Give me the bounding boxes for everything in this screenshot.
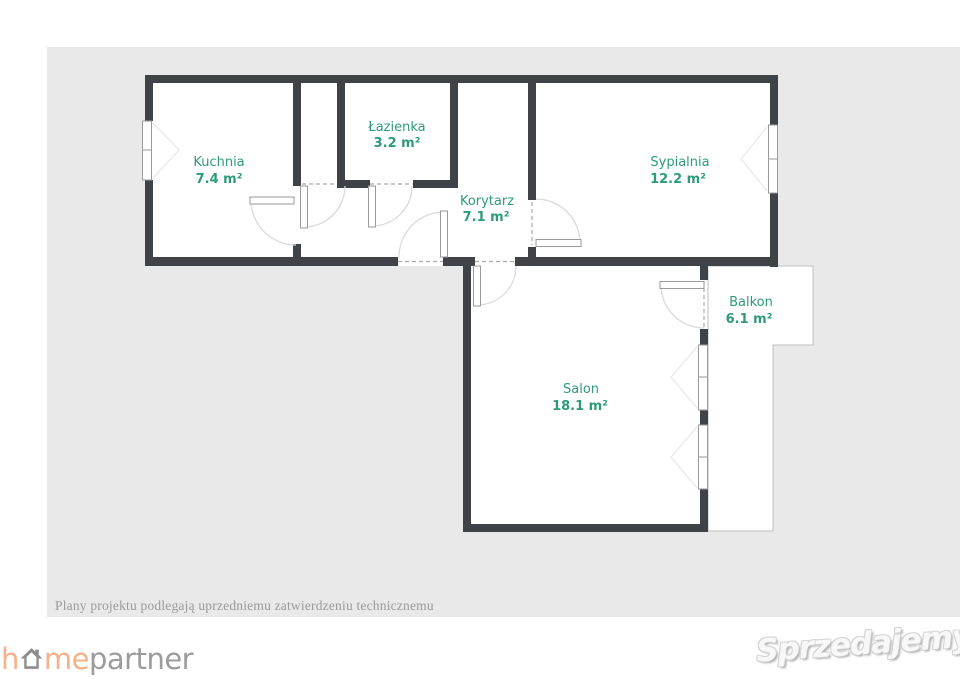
svg-text:Kuchnia: Kuchnia (193, 155, 244, 170)
disclaimer-text: Plany projektu podlegają uprzedniemu zat… (55, 598, 434, 614)
svg-text:3.2 m²: 3.2 m² (374, 136, 421, 151)
house-icon (18, 645, 45, 672)
svg-text:Balkon: Balkon (729, 295, 773, 310)
vestibule-door (301, 186, 308, 228)
svg-text:18.1 m²: 18.1 m² (552, 399, 608, 414)
balcony-door (660, 282, 704, 289)
entrance-door (441, 211, 448, 257)
bedroom-door (536, 240, 581, 247)
svg-text:Łazienka: Łazienka (367, 120, 425, 135)
svg-text:12.2 m²: 12.2 m² (650, 172, 706, 187)
homepartner-logo-h: h (1, 644, 19, 674)
homepartner-logo: h me partner (1, 643, 193, 675)
svg-text:6.1 m²: 6.1 m² (726, 312, 773, 327)
svg-text:Korytarz: Korytarz (460, 194, 514, 209)
floor-plan: Kuchnia 7.4 m² Łazienka 3.2 m² Korytarz … (0, 0, 960, 679)
room-label-lazienka: Łazienka 3.2 m² (367, 120, 425, 151)
homepartner-logo-me: me (44, 644, 89, 674)
room-label-korytarz: Korytarz 7.1 m² (460, 194, 514, 225)
svg-text:Sypialnia: Sypialnia (650, 155, 709, 170)
floorplan-page: { "colors": { "canvas_bg": "#e9e9e9", "w… (0, 0, 960, 679)
homepartner-logo-partner: partner (89, 644, 193, 674)
svg-text:7.1 m²: 7.1 m² (463, 210, 510, 225)
kitchen-door (250, 197, 294, 204)
svg-text:7.4 m²: 7.4 m² (196, 172, 243, 187)
svg-text:Salon: Salon (563, 382, 599, 397)
salon-door (474, 266, 481, 306)
bathroom-door (369, 186, 376, 227)
